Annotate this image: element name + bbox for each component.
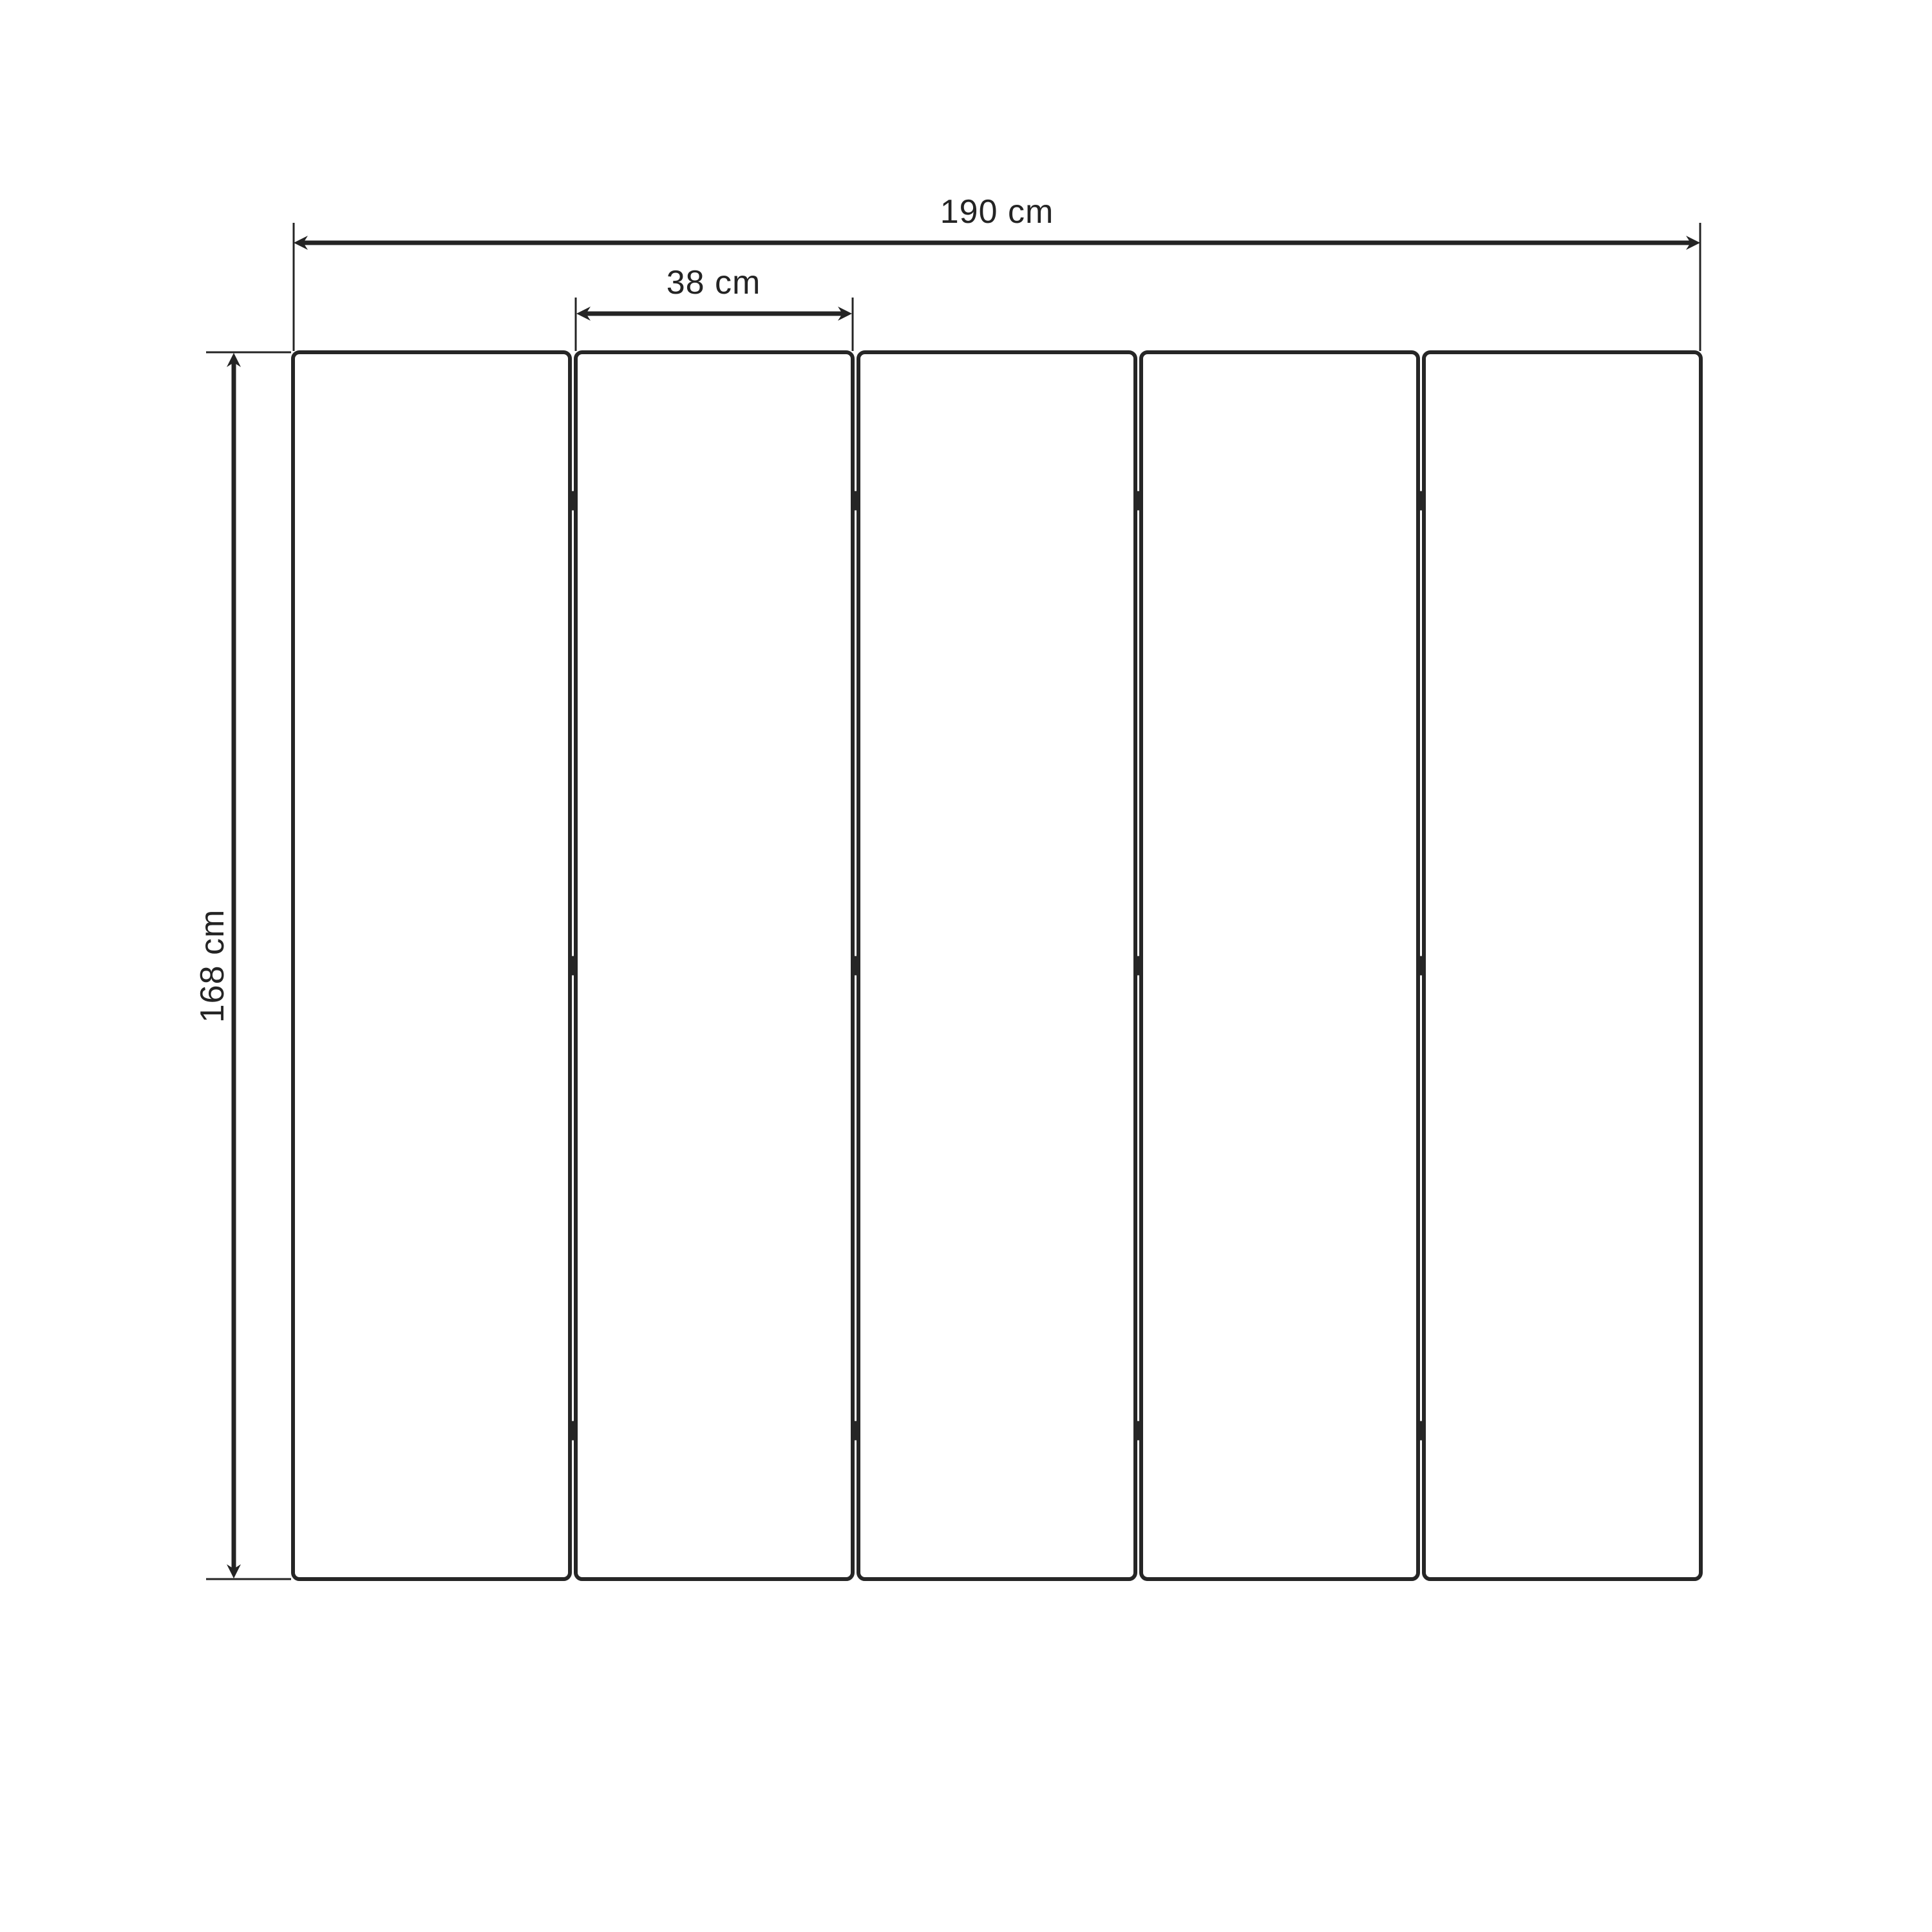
dimension-panel-width: 38 cm	[576, 264, 853, 351]
hinge-gap4-row2	[1417, 956, 1425, 976]
hinge-gap2-row3	[851, 1421, 860, 1440]
hinge-gap1-row2	[569, 956, 577, 976]
hinge-gap1-row1	[569, 491, 577, 511]
dimension-drawing: 190 cm 38 cm 168 cm	[0, 0, 1932, 1932]
panels	[293, 352, 1701, 1579]
hinge-gap4-row1	[1417, 491, 1425, 511]
dimension-height: 168 cm	[194, 352, 291, 1579]
hinge-gap3-row3	[1134, 1421, 1142, 1440]
panel-4	[1141, 352, 1418, 1579]
panel-2	[576, 352, 853, 1579]
hinge-gap3-row2	[1134, 956, 1142, 976]
hinge-gap2-row2	[851, 956, 860, 976]
drawing-canvas: 190 cm 38 cm 168 cm	[0, 0, 1932, 1932]
panel-1	[293, 352, 570, 1579]
panel-5	[1424, 352, 1701, 1579]
hinge-gap2-row1	[851, 491, 860, 511]
total-width-label: 190 cm	[940, 193, 1054, 231]
hinge-gap4-row3	[1417, 1421, 1425, 1440]
hinge-gap1-row3	[569, 1421, 577, 1440]
height-label: 168 cm	[194, 909, 231, 1023]
panel-3	[858, 352, 1135, 1579]
dimension-total-width: 190 cm	[294, 193, 1700, 351]
hinge-gap3-row1	[1134, 491, 1142, 511]
panel-width-label: 38 cm	[667, 264, 761, 301]
